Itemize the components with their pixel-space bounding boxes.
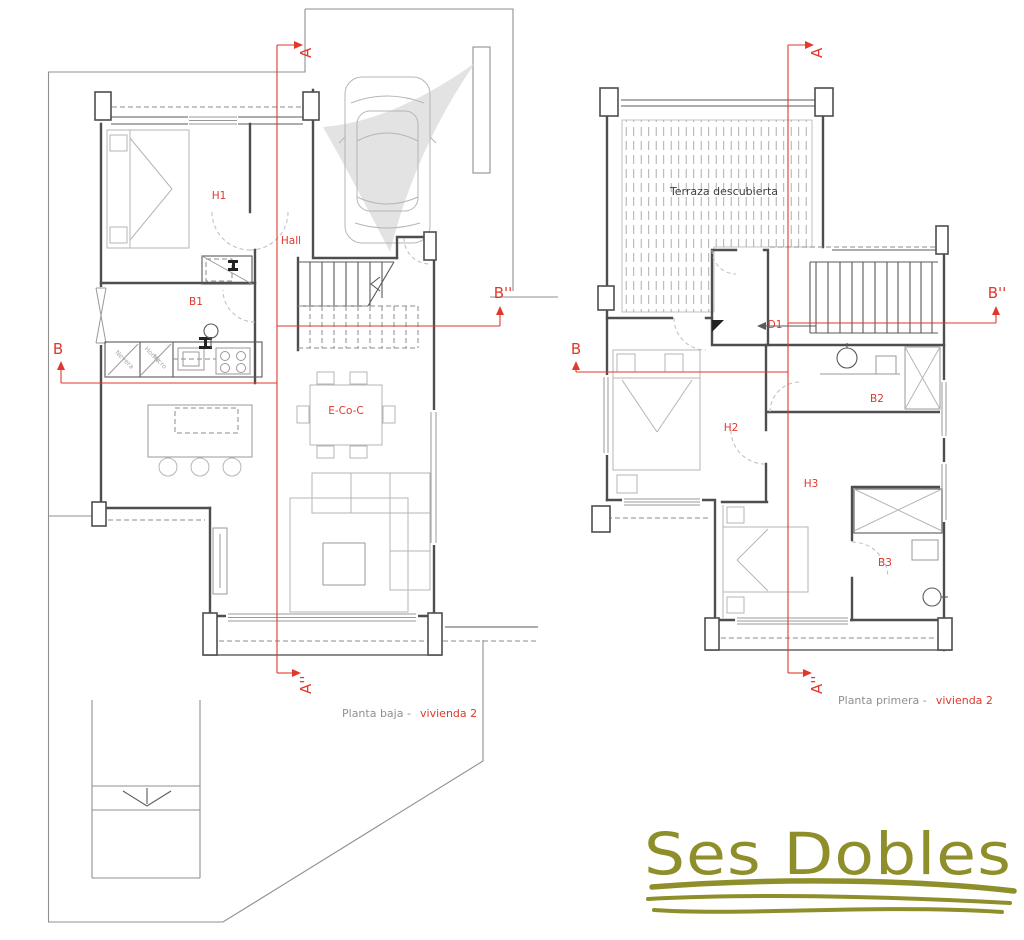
- door-arc: [770, 382, 800, 412]
- bed-icon: [723, 505, 808, 618]
- room-label-h3: H3: [804, 478, 819, 490]
- room-label-d1: D1: [768, 319, 783, 331]
- room-label-h1: H1: [212, 190, 227, 202]
- coffee-table-icon: [323, 543, 365, 585]
- first-floor-caption: Planta primera - vivienda 2: [838, 689, 993, 708]
- driveway-arrow-icon: [123, 788, 171, 806]
- section-arrow-icon: [992, 306, 1000, 315]
- appliance-label-fridge: Nevera: [113, 348, 135, 370]
- door-arc: [712, 250, 736, 274]
- section-label-a-top: A: [297, 47, 315, 58]
- door-arc: [674, 318, 706, 350]
- room-label-b2: B2: [870, 393, 884, 405]
- column-icon: [199, 337, 212, 349]
- section-label-b-left: B: [571, 340, 581, 358]
- logo: Ses Dobles: [644, 820, 1014, 912]
- closet-icon: [202, 256, 252, 284]
- room-label-ecoc: E-Co-C: [328, 405, 364, 417]
- section-label-a-top: A: [808, 47, 826, 58]
- plans-drawing: A A'' B B'' H1 Hall B1 E-Co-C Nevera Hor…: [0, 0, 1024, 940]
- shade-sail-icon: [323, 63, 475, 252]
- door-arc: [212, 212, 250, 250]
- section-label-a-bottom: A'': [297, 675, 315, 694]
- section-label-a-bottom: A'': [808, 675, 826, 694]
- ground-floor-section-lines: A A'' B B'': [53, 41, 512, 694]
- bathroom-sink-icon: [820, 343, 900, 374]
- section-label-b-left: B: [53, 340, 63, 358]
- first-floor-furniture: [613, 343, 948, 618]
- caption-highlight: vivienda 2: [420, 707, 477, 720]
- door-threshold-icon: [712, 320, 724, 332]
- ground-floor-walls: [92, 90, 538, 655]
- first-floor-stairs: [757, 262, 938, 333]
- toilet-icon: [912, 540, 938, 560]
- wardrobe-icon: [905, 347, 940, 409]
- caption-highlight: vivienda 2: [936, 694, 993, 707]
- carport: [323, 63, 475, 252]
- ground-floor-caption: Planta baja - vivienda 2: [342, 702, 477, 721]
- section-arrow-icon: [57, 361, 65, 370]
- room-label-b3: B3: [878, 557, 892, 569]
- driveway: [92, 700, 200, 878]
- sofa-icon: [290, 473, 430, 612]
- section-arrow-icon: [572, 361, 580, 370]
- floor-plan-sheet: A A'' B B'' H1 Hall B1 E-Co-C Nevera Hor…: [0, 0, 1024, 940]
- bed-icon: [107, 130, 189, 248]
- logo-underline-icon: [654, 909, 1002, 912]
- caption-prefix: Planta primera -: [838, 694, 927, 707]
- carport-post: [473, 47, 490, 173]
- logo-text: Ses Dobles: [644, 820, 1012, 888]
- room-label-b1: B1: [189, 296, 203, 308]
- kitchen-island-icon: [148, 405, 252, 476]
- ground-floor-plan: A A'' B B'' H1 Hall B1 E-Co-C Nevera Hor…: [49, 9, 559, 922]
- first-floor-plan: A A'' B B'' Terraza descubierta D1 H2 B2…: [571, 41, 1006, 708]
- room-label-terrace: Terraza descubierta: [669, 185, 778, 198]
- faucet-icon: [204, 324, 218, 338]
- section-label-b-right: B'': [988, 284, 1007, 302]
- section-label-b-right: B'': [494, 284, 513, 302]
- section-arrow-icon: [496, 306, 504, 315]
- ground-floor-stairs: [298, 258, 418, 350]
- stair-direction-arrow-icon: [757, 322, 766, 330]
- caption-prefix: Planta baja -: [342, 707, 411, 720]
- plot-boundary: [49, 9, 559, 922]
- terrace-hatch: [622, 120, 812, 312]
- shower-icon: [854, 489, 942, 533]
- room-label-hall: Hall: [281, 235, 301, 247]
- appliance-label-oven2: Micro: [150, 353, 168, 371]
- door-arc: [223, 290, 255, 322]
- logo-underline-icon: [648, 896, 1010, 903]
- room-label-h2: H2: [724, 422, 739, 434]
- door-arc: [731, 430, 765, 464]
